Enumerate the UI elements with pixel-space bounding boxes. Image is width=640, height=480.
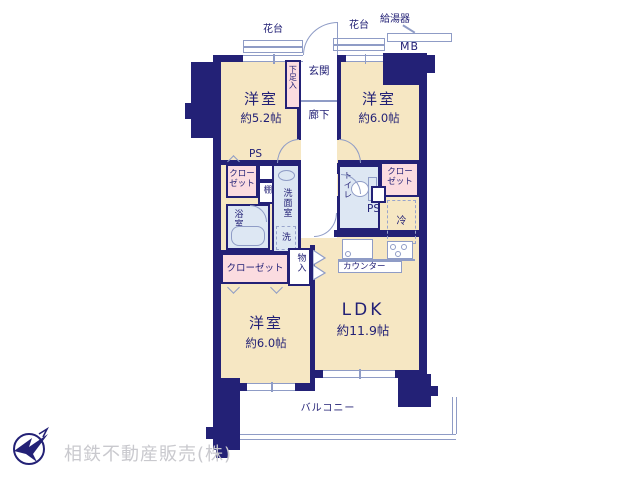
ldk-size: 約11.9帖 — [313, 324, 413, 337]
closet-left: クローゼット — [226, 164, 258, 198]
storage-label: 物入 — [295, 253, 304, 273]
counter-label: カウンター — [343, 263, 386, 272]
bathtub — [231, 226, 265, 246]
hallway-label: 廊下 — [301, 110, 337, 121]
bedroom60b-name: 洋室 — [221, 316, 311, 332]
pipe-space-right-box — [371, 186, 386, 203]
meter-box-label: MB — [400, 41, 419, 53]
flower-box-right-label: 花台 — [333, 21, 385, 32]
washroom-label: 洗面室 — [281, 188, 290, 218]
water-heater-unit — [387, 33, 452, 42]
floorplan-canvas: 下足入 クローゼット 棚 浴室 洗面室 洗 トイレ クローゼット 冷 カウンター… — [0, 0, 640, 480]
folding-door-icon — [313, 250, 327, 280]
entrance-label: 玄関 — [301, 66, 337, 77]
window-tick — [273, 54, 275, 64]
storage-box: 物入 — [288, 248, 311, 286]
pipe-space-right-label: PS — [367, 204, 380, 215]
shelf-label: 棚 — [262, 185, 271, 195]
wall-left-step — [191, 62, 213, 138]
window-bedroom-balcony — [247, 383, 295, 391]
flower-box-left-label: 花台 — [243, 25, 303, 36]
pillar-bottom-left-bump — [206, 427, 213, 439]
washroom: 洗面室 洗 — [272, 164, 300, 253]
washer-label: 洗 — [282, 234, 291, 243]
balcony-label: バルコニー — [288, 404, 368, 415]
counter-label-band: カウンター — [338, 261, 402, 273]
wall-right — [419, 55, 427, 378]
bedroom52-name: 洋室 — [221, 92, 301, 108]
shoe-cabinet-label: 下足入 — [288, 65, 296, 89]
water-heater-label: 給湯器 — [380, 15, 410, 26]
water-heater-pointer — [403, 24, 416, 33]
stove-burner — [390, 244, 396, 250]
stove-burner — [395, 251, 401, 257]
window-tick — [359, 369, 361, 379]
closet-bottom-label: クローゼット — [226, 264, 283, 274]
bedroom60t-name: 洋室 — [338, 92, 420, 108]
company-name: 相鉄不動産販売(株) — [64, 440, 232, 466]
bedroom60b-size: 約6.0帖 — [221, 337, 311, 349]
wall-left — [213, 55, 221, 391]
flower-box-left-line — [243, 46, 303, 48]
hallway-floor — [301, 55, 337, 238]
wall-left-bump — [185, 103, 191, 119]
ldk-name: LDK — [313, 302, 413, 320]
stove-burner — [401, 244, 407, 250]
bedroom52-size: 約5.2帖 — [221, 112, 301, 124]
flower-box-right-line — [333, 44, 385, 46]
balcony-rail-right — [452, 397, 457, 434]
window-ldk-balcony — [323, 370, 395, 378]
kitchen-faucet — [345, 251, 351, 257]
balcony-rail-bottom — [238, 434, 456, 440]
meter-box-bump — [427, 55, 435, 73]
entrance-step-line — [301, 100, 337, 102]
sotetsu-logo — [8, 424, 52, 468]
window-tick — [271, 382, 273, 392]
pillar-bottom-right-bump — [431, 386, 438, 396]
closet-left-label: クローゼット — [229, 170, 255, 190]
pillar-bottom-right — [398, 374, 431, 407]
refrigerator-label: 冷 — [397, 217, 407, 228]
closet-right-label: クローゼット — [384, 168, 416, 188]
closet-bottom: クローゼット — [221, 253, 289, 284]
bedroom60t-size: 約6.0帖 — [338, 112, 420, 124]
window-top-right — [346, 55, 383, 62]
window-tick — [365, 54, 367, 64]
pipe-space-left-label: PS — [249, 149, 262, 160]
washbasin — [278, 170, 295, 181]
refrigerator-space: 冷 — [387, 200, 416, 244]
